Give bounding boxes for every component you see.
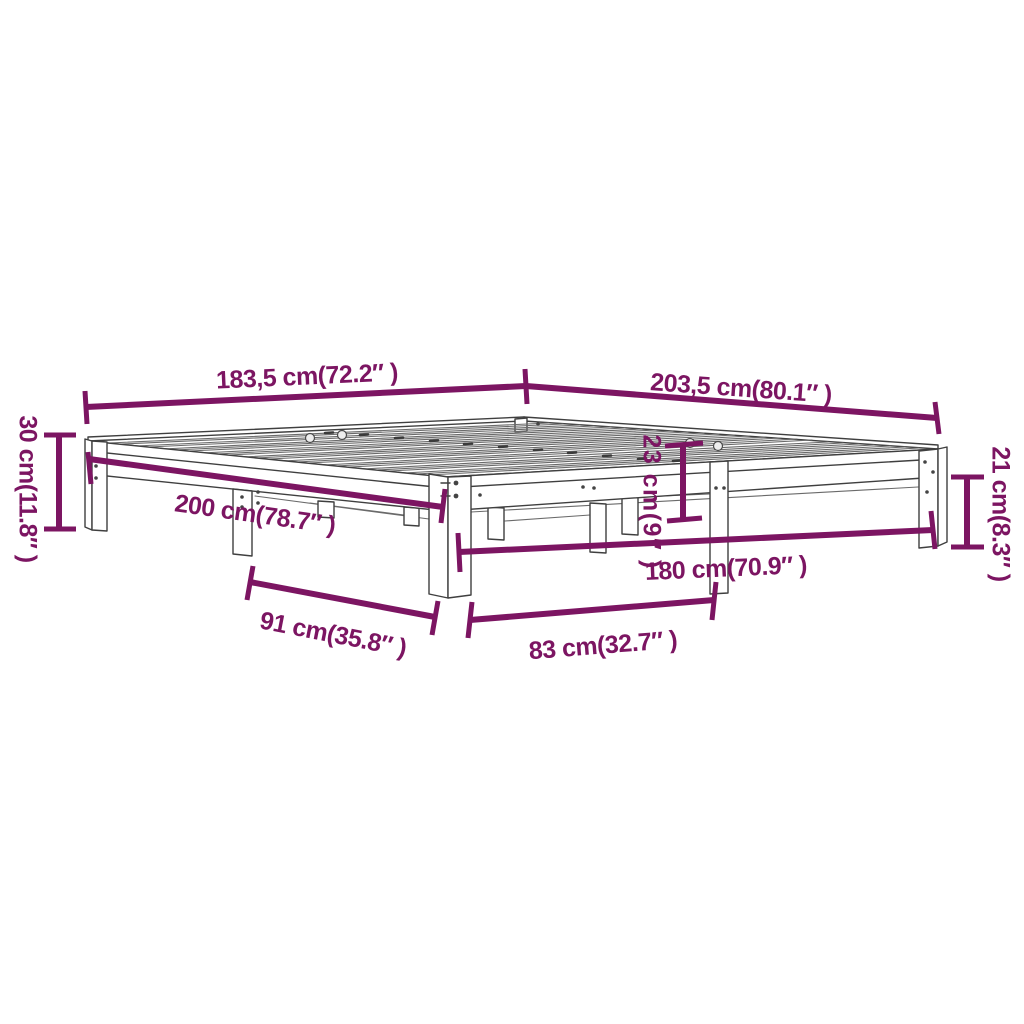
dimension-line-21 — [951, 477, 984, 547]
mattress-knob — [306, 434, 315, 443]
support-leg — [488, 507, 504, 540]
left-corner-leg — [92, 441, 107, 531]
support-leg — [622, 496, 638, 535]
support-leg — [404, 507, 419, 526]
dimension-label-30: 30 cm(11.8″ ) — [15, 415, 40, 562]
dimension-line-30 — [44, 435, 76, 529]
mattress-knob — [714, 442, 723, 451]
dimension-line-83 — [468, 582, 716, 638]
right-corner-leg — [938, 447, 947, 546]
product-dimension-diagram: 183,5 cm(72.2″ ) 203,5 cm(80.1″ ) 30 cm(… — [0, 0, 1024, 1024]
mattress-knob — [338, 431, 347, 440]
dimension-label-21: 21 cm(8.3″ ) — [988, 446, 1013, 581]
dimension-label-23: 23 cm(9″ ) — [639, 434, 664, 569]
bed-frame-line-drawing — [0, 0, 1024, 1024]
